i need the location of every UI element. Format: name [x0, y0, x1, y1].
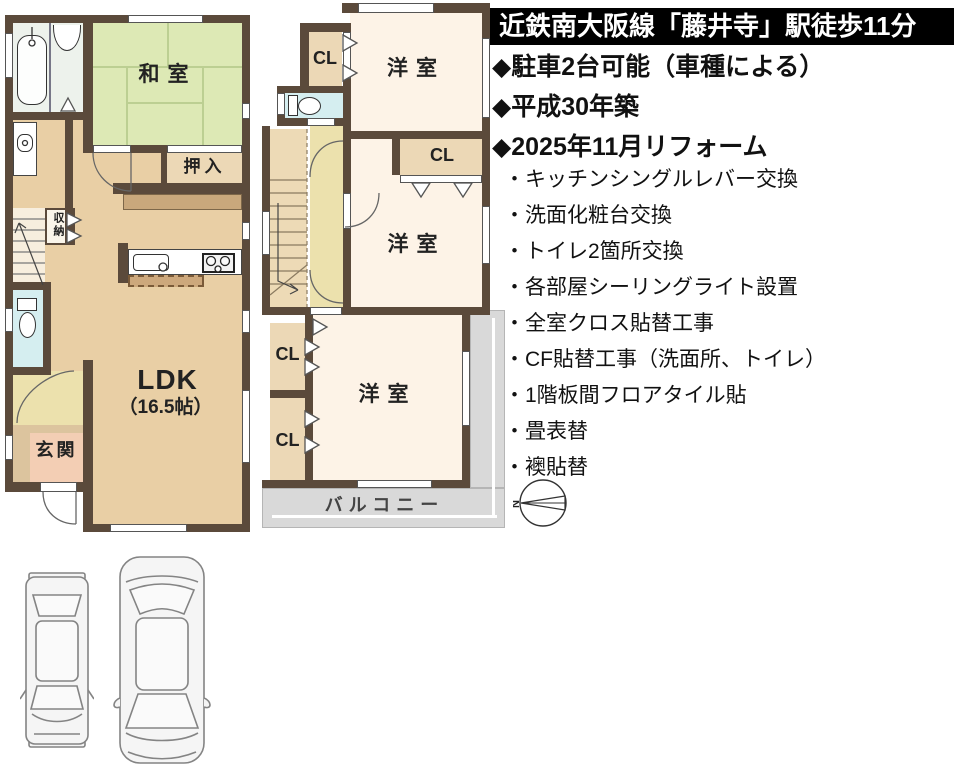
wall-segment — [118, 243, 128, 283]
wall-segment — [43, 290, 51, 367]
stairs-2f — [270, 129, 307, 307]
window — [5, 33, 13, 78]
wall-segment — [5, 367, 51, 375]
ldk-room-lower — [91, 485, 242, 524]
room-label-cl4: CL — [270, 431, 305, 451]
wall-segment — [83, 23, 93, 153]
room-label-cl1: CL — [307, 49, 343, 69]
renovation-item: ・洗面化粧台交換 — [504, 198, 952, 234]
door-opening — [307, 118, 335, 126]
car-large-topview — [112, 552, 212, 768]
wall-segment — [5, 15, 13, 492]
window — [357, 480, 432, 488]
window — [242, 222, 250, 240]
door-opening — [93, 145, 131, 153]
sliding-door — [167, 145, 242, 153]
window — [242, 310, 250, 333]
window — [462, 351, 470, 426]
room-label-ldk: LDK — [93, 365, 242, 396]
stove — [202, 253, 235, 273]
renovation-item: ・1階板間フロアタイル貼 — [504, 378, 952, 414]
window — [5, 308, 13, 332]
room-label-yoshitsu-2: 洋室 — [351, 233, 482, 256]
window — [128, 15, 203, 23]
floor-plan-2f: 洋室 洋室 洋室 CL CL CL CL バルコニー — [262, 3, 505, 530]
window — [242, 103, 250, 119]
wall-segment — [277, 86, 343, 93]
toilet-tank — [288, 95, 298, 116]
window — [358, 3, 434, 13]
room-label-ldk-size: （16.5帖） — [83, 398, 248, 419]
wall-segment — [5, 282, 51, 290]
wall-segment — [343, 229, 351, 315]
floor-plan-page: 和室 押入 収納 LDK （16.5帖） 玄関 — [0, 0, 954, 768]
window — [5, 435, 13, 460]
window — [277, 93, 285, 115]
counter-overhang — [128, 275, 204, 287]
wall-segment — [67, 208, 75, 245]
room-label-yoshitsu-3: 洋室 — [313, 383, 462, 406]
room-label-shunou: 収納 — [48, 212, 64, 238]
wall-segment — [343, 131, 490, 139]
entrance-door — [40, 482, 77, 492]
room-label-yoshitsu-1: 洋室 — [350, 57, 482, 80]
kitchen-cabinet — [123, 194, 242, 210]
info-panel-header: 近鉄南大阪線「藤井寺」駅徒歩11分 — [490, 8, 954, 45]
room-label-balcony: バルコニー — [297, 496, 472, 516]
car-small-topview — [20, 568, 94, 752]
toilet-bowl — [19, 312, 36, 338]
sliding-door — [400, 175, 482, 183]
wall-segment — [343, 79, 351, 87]
wall-segment — [65, 120, 73, 208]
door-opening — [310, 307, 342, 315]
renovation-item: ・全室クロス貼替工事 — [504, 306, 952, 342]
wall-segment — [83, 360, 93, 524]
renovation-item: ・キッチンシングルレバー交換 — [504, 162, 952, 198]
wall-segment — [13, 112, 83, 120]
window — [262, 211, 270, 255]
toilet-tank — [17, 298, 37, 311]
bath-divider — [49, 23, 51, 112]
highlight-line: ◆平成30年築 — [492, 87, 952, 127]
wall-segment — [270, 390, 305, 398]
hall-1f — [13, 371, 83, 425]
wall-segment — [392, 139, 400, 175]
kitchen-sink — [133, 254, 169, 271]
compass-icon: N — [513, 477, 573, 531]
renovation-item: ・各部屋シーリングライト設置 — [504, 270, 952, 306]
room-label-cl2: CL — [412, 146, 472, 166]
wall-segment — [131, 145, 167, 153]
floor-plan-1f: 和室 押入 収納 LDK （16.5帖） 玄関 — [5, 15, 250, 532]
door-opening — [343, 193, 351, 229]
wall-segment — [113, 183, 242, 194]
room-label-washitsu: 和室 — [93, 63, 242, 86]
room-label-oshiire: 押入 — [167, 158, 242, 177]
renovation-item: ・畳表替 — [504, 414, 952, 450]
window — [482, 206, 490, 264]
room-label-cl3: CL — [270, 345, 305, 365]
compass-north-label: N — [513, 500, 522, 508]
wash-basin-bowl — [17, 134, 33, 152]
highlight-line: ◆駐車2台可能（車種による） — [492, 47, 952, 87]
highlight-line: ◆2025年11月リフォーム — [492, 127, 952, 167]
genkan-step — [13, 425, 83, 433]
renovation-item: ・トイレ2箇所交換 — [504, 234, 952, 270]
bathtub — [17, 35, 47, 105]
window — [482, 38, 490, 118]
shoe-cabinet — [13, 433, 30, 482]
wall-segment — [305, 315, 313, 480]
toilet-bowl — [298, 97, 321, 115]
wall-segment — [343, 87, 351, 193]
renovation-item: ・CF貼替工事（洗面所、トイレ） — [504, 342, 952, 378]
stairs-1f — [13, 208, 45, 290]
wall-segment — [343, 23, 351, 32]
wall-segment — [262, 307, 490, 315]
room-label-genkan: 玄関 — [30, 441, 83, 461]
balcony-side — [470, 310, 505, 488]
hall-2f — [310, 126, 343, 307]
balcony-rail-line — [492, 318, 495, 518]
window — [110, 524, 187, 532]
